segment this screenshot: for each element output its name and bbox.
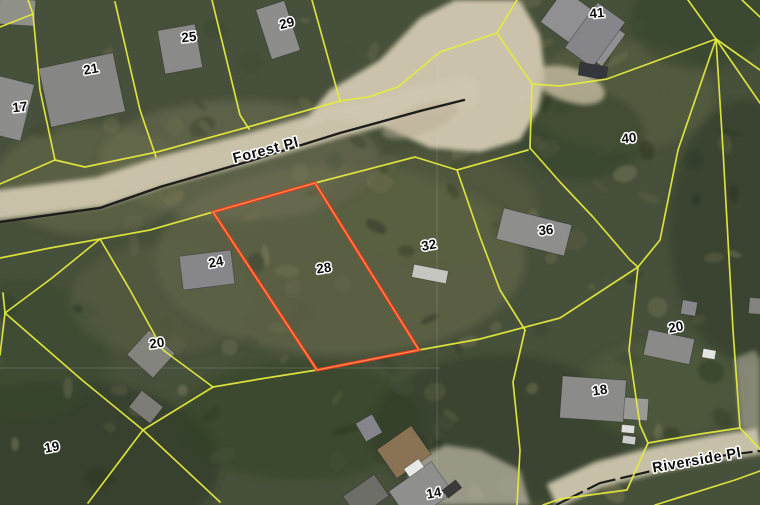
building-roof [748, 297, 760, 314]
parcel-label-41: 41 [589, 5, 606, 21]
speckle [274, 265, 300, 277]
building-roof [622, 435, 636, 445]
parcel-label-32: 32 [420, 236, 437, 253]
map-viewport[interactable]: 172125294140363228242019201814Forest PlR… [0, 0, 760, 505]
parcel-label-19: 19 [43, 438, 60, 455]
parcel-label-24: 24 [207, 253, 225, 270]
parcel-label-28: 28 [315, 260, 332, 277]
parcel-label-18: 18 [591, 382, 608, 399]
building-roof [621, 424, 635, 433]
parcel-label-20: 20 [148, 335, 165, 352]
speckle [63, 377, 72, 399]
building-roof [680, 300, 697, 316]
parcel-label-40: 40 [621, 130, 637, 146]
building-roof [702, 348, 716, 359]
parcel-label-17: 17 [12, 99, 29, 115]
aerial-parcel-map[interactable]: 172125294140363228242019201814Forest PlR… [0, 0, 760, 505]
parcel-label-14: 14 [425, 484, 443, 501]
parcel-label-25: 25 [181, 29, 198, 46]
building-roof [0, 0, 36, 26]
parcel-label-21: 21 [82, 60, 100, 77]
parcel-label-36: 36 [538, 222, 555, 238]
parcel-label-20: 20 [667, 318, 684, 335]
